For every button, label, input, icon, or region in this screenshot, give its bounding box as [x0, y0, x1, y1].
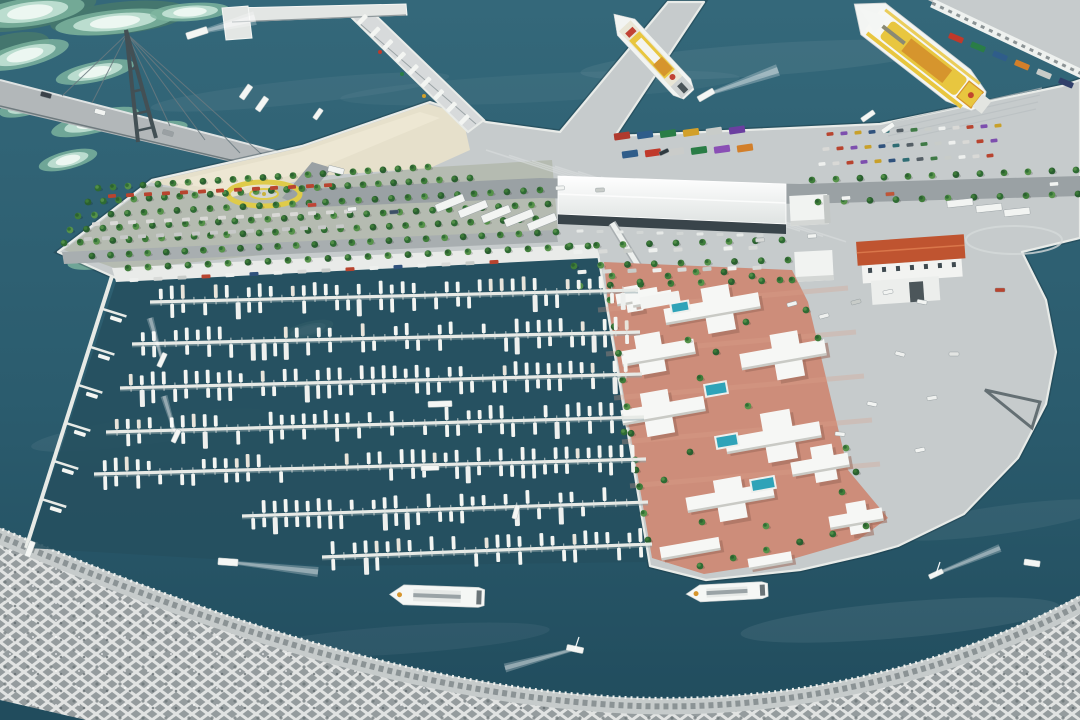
- white-building: [789, 194, 831, 226]
- yacht: [389, 584, 485, 607]
- scene-canvas: [0, 0, 1080, 720]
- white-building: [794, 250, 834, 282]
- port-aerial-render: [0, 0, 1080, 720]
